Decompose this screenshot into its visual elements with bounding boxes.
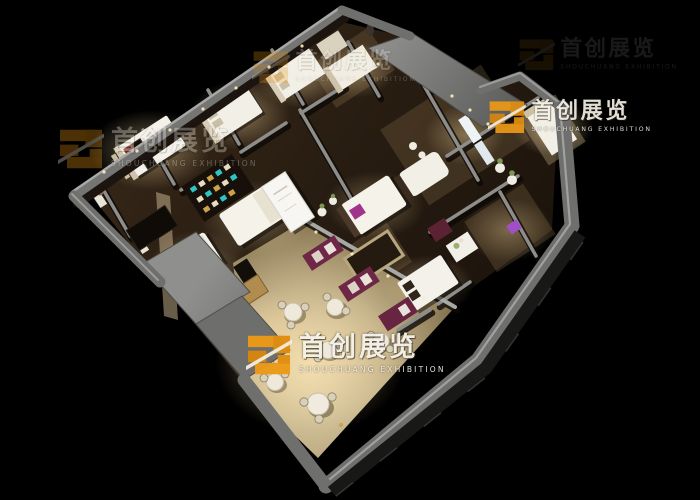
render-stage: 首创展览 SHOUCHUANG EXHIBITION 首创展览 SHOUCHUA… [0, 0, 700, 500]
floorplan-render [0, 0, 700, 500]
